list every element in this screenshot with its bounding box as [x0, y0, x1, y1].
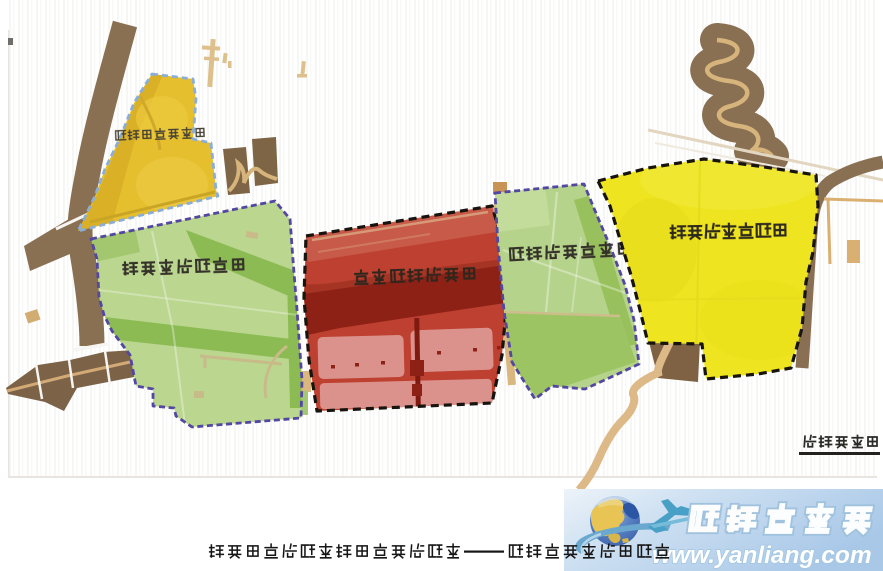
svg-text:www.yanliang.com: www.yanliang.com	[652, 542, 872, 569]
